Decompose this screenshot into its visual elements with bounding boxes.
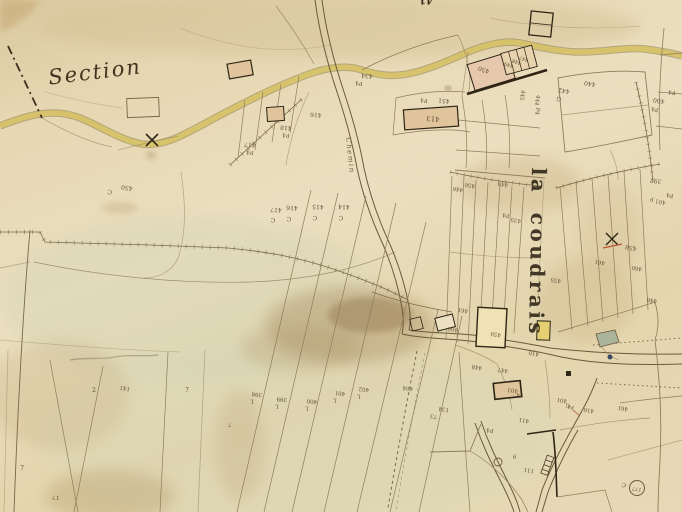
parcel-number-label: 445 [517,89,524,100]
parcel-number-label: 7 [228,420,232,426]
parcel-number-label: 415 [312,203,324,210]
parcel-number-label: L [357,392,361,398]
parcel-number-label: 417 [270,206,282,213]
parcel-number-label: 444 [532,94,539,105]
parcel-number-label: 451 [438,97,450,104]
parcel-number-label: 401 [335,389,346,395]
parcel-number-label: 2 [92,388,96,394]
parcel-number-label: 460 [447,324,458,331]
parcel-number-label: P4 [486,426,494,432]
parcel-number-label: 7 [20,466,24,472]
parcel-number-label: 400 [307,397,318,403]
parcel-number-label: 416 [286,204,298,211]
parcel-number-label: 458 [625,243,637,251]
parcel-number-label: P4 [355,79,363,85]
parcel-number-label: 177 [632,485,642,492]
building-square [476,307,507,347]
parcel-number-label: L [250,397,254,403]
parcel-number-label: C [313,214,318,220]
building-outline [127,97,160,117]
parcel-number-label: P4 [567,403,574,409]
parcel-number-label: P4 [516,391,523,397]
parcel-number-label: P4 [533,107,540,115]
parcel-number-label: 461 [617,403,628,410]
parcel-number-label: L [275,402,279,408]
parcel-number-label: C [339,214,344,220]
parcel-number-label: 73 [430,412,438,419]
parcel-number-label: L [333,396,337,402]
parcel-number-label: 410 [528,348,539,355]
parcel-number-label: 446 [452,184,463,191]
parcel-number-label: 411 [518,415,529,422]
parcel-number-label: 7 [185,388,189,394]
parcel-number-label: 442 [558,86,570,94]
section-boundary-dashdot [8,46,42,118]
parcel-number-label: 399 [277,395,288,401]
place-name-la-coudrais: la coudrais [524,168,551,338]
parcel-number-label: 435 [510,215,521,222]
parcel-number-label: 111 [523,465,534,472]
cadastral-map: Section la coudrais Chemin 41 434P4P4451… [0,0,682,512]
parcel-number-label: G [556,95,562,102]
parcel-number-label: P4 [282,131,290,137]
parcel-number-label: P4 [651,105,659,112]
parcel-number-label: 134 [438,404,449,411]
parcel-number-label: 141 [119,383,130,390]
parcel-number-label: 398 [252,390,263,396]
parcel-number-label: 461 [457,305,468,312]
parcel-number-label: 448 [471,362,482,369]
parcel-number-label: 418 [280,124,292,131]
parcel-number-label: C [271,216,276,222]
parcel-number-label: 461 [594,257,605,264]
sheet-edge-number: 41 [419,0,433,5]
parcel-number-label: 404 [403,384,414,390]
parcel-number-label: 449 [497,179,508,186]
red-mark [573,410,580,416]
parcel-number-label: 459 [490,329,501,336]
building [227,60,253,79]
parcel-number-label: 17 [52,493,60,500]
parcel-number-label: 402 [359,385,370,391]
blue-dot [608,355,613,360]
parcel-number-label: 400 [653,96,665,104]
parcel-number-label: 397 [650,176,662,184]
parcel-number-label: 446 [646,295,657,302]
parcel-number-label: 416 [310,111,322,118]
parcel-number-label: 416 [583,405,594,412]
parcel-number-label: L [305,404,309,410]
parcel-number-label: 447 [497,365,508,372]
parcel-number-label: 456 [464,180,475,187]
building [267,106,285,121]
parcel-number-label: 450 [121,183,133,191]
parcel-number-label: P4 [246,148,254,154]
parcel-number-label: 460 [631,263,642,270]
parcel-number-label: P4 [666,191,674,198]
parcel-number-label: P4 [502,211,510,218]
parcel-number-label: P4 [420,96,428,102]
parcel-number-label: 440 [584,79,596,87]
parcel-number-label: 414 [338,203,350,210]
parcel-number-label: C [287,215,292,221]
parcel-number-label: P4 [668,88,676,94]
black-square-dot [566,371,571,376]
parcel-number-label: 434 [361,72,373,79]
parcel-number-label: 455 [550,275,561,282]
parcel-number-label: 413 [426,114,440,122]
parcel-number-label: 417 [244,141,256,148]
